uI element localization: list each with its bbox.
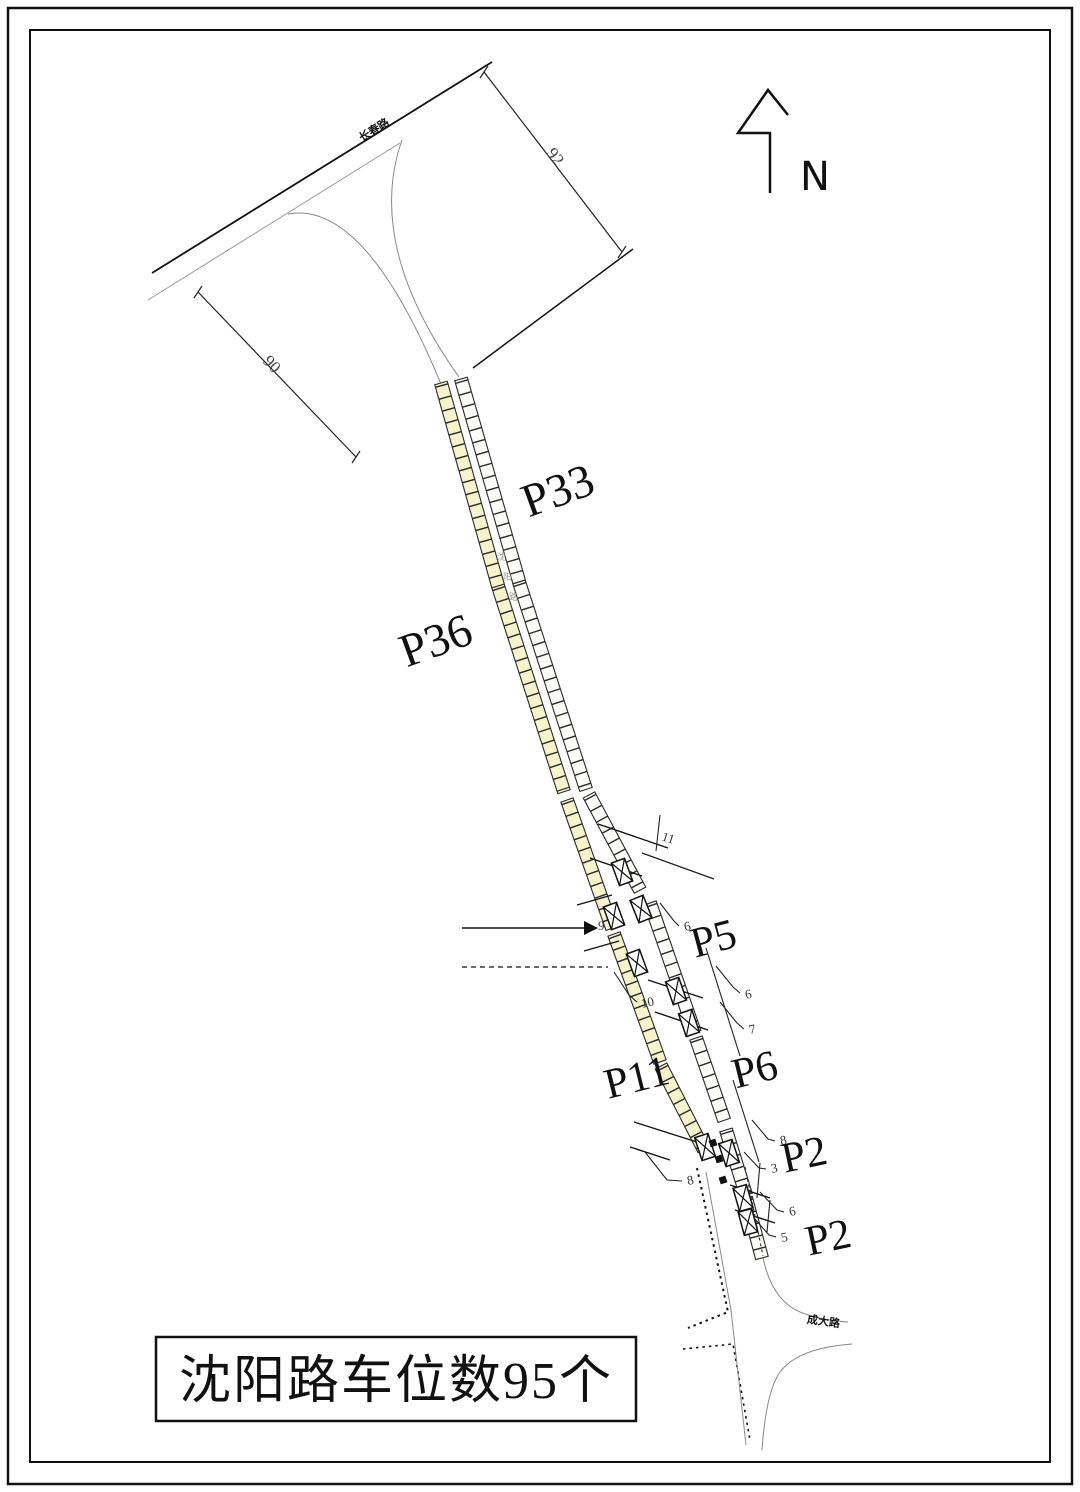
upper-intersection: 92 90 长春路 — [148, 62, 633, 463]
dimension-92: 92 — [543, 144, 568, 169]
fillet-curve-west — [288, 213, 441, 384]
side-street-west: 9 — [462, 895, 619, 967]
dimension-11: 11 — [660, 829, 677, 847]
top-road-name: 长春路 — [356, 114, 392, 144]
inner-border — [30, 30, 1050, 1462]
main-road-char: 沈 — [497, 551, 506, 563]
label-p5: P5 — [685, 910, 741, 967]
label-p33: P33 — [515, 454, 602, 528]
drawing-title: 沈阳路车位数95个 — [179, 1353, 613, 1410]
site-plan-drawing: N 92 90 长春路 沈 阳 — [0, 0, 1080, 1492]
dimension-8-left: 8 — [686, 1172, 695, 1188]
dimension-10: 10 — [640, 994, 656, 1011]
dim-tick — [352, 451, 360, 463]
bottom-intersection: 成大路 — [683, 1167, 852, 1450]
parcel-edge-line — [473, 249, 633, 368]
dimension-6-low: 6 — [788, 1203, 798, 1219]
dimension-7: 7 — [748, 1021, 758, 1037]
label-p36: P36 — [393, 604, 480, 678]
fillet-bottom-ne — [763, 1258, 848, 1322]
dimension-3: 3 — [770, 1160, 779, 1176]
dim-tick — [194, 286, 202, 298]
label-p11: P11 — [599, 1047, 674, 1108]
dimension-90: 90 — [259, 351, 284, 376]
arrowhead-icon — [584, 921, 598, 935]
fillet-curve-east — [392, 140, 459, 377]
main-road-char: 阳 — [503, 572, 512, 583]
dimension-9: 9 — [598, 918, 605, 933]
title-block: 沈阳路车位数95个 — [156, 1337, 636, 1421]
fillet-bottom-se — [762, 1344, 852, 1450]
dashed-edge-left — [688, 1168, 728, 1328]
main-road-char: 路 — [509, 591, 518, 603]
bottom-road-name: 成大路 — [806, 1312, 842, 1331]
label-p2-upper: P2 — [777, 1127, 831, 1182]
outer-border — [8, 8, 1072, 1484]
north-label: N — [800, 154, 830, 200]
north-arrow-icon: N — [738, 90, 830, 200]
parking-strip-east — [455, 377, 768, 1259]
dimension-5: 5 — [780, 1229, 789, 1245]
dimension-6-mid: 6 — [744, 986, 754, 1002]
label-p2-lower: P2 — [801, 1210, 855, 1265]
label-p6: P6 — [727, 1042, 782, 1099]
upper-road-curb-line — [148, 143, 400, 300]
dimension-line-90 — [198, 292, 356, 457]
upper-road-edge-line — [152, 62, 492, 273]
